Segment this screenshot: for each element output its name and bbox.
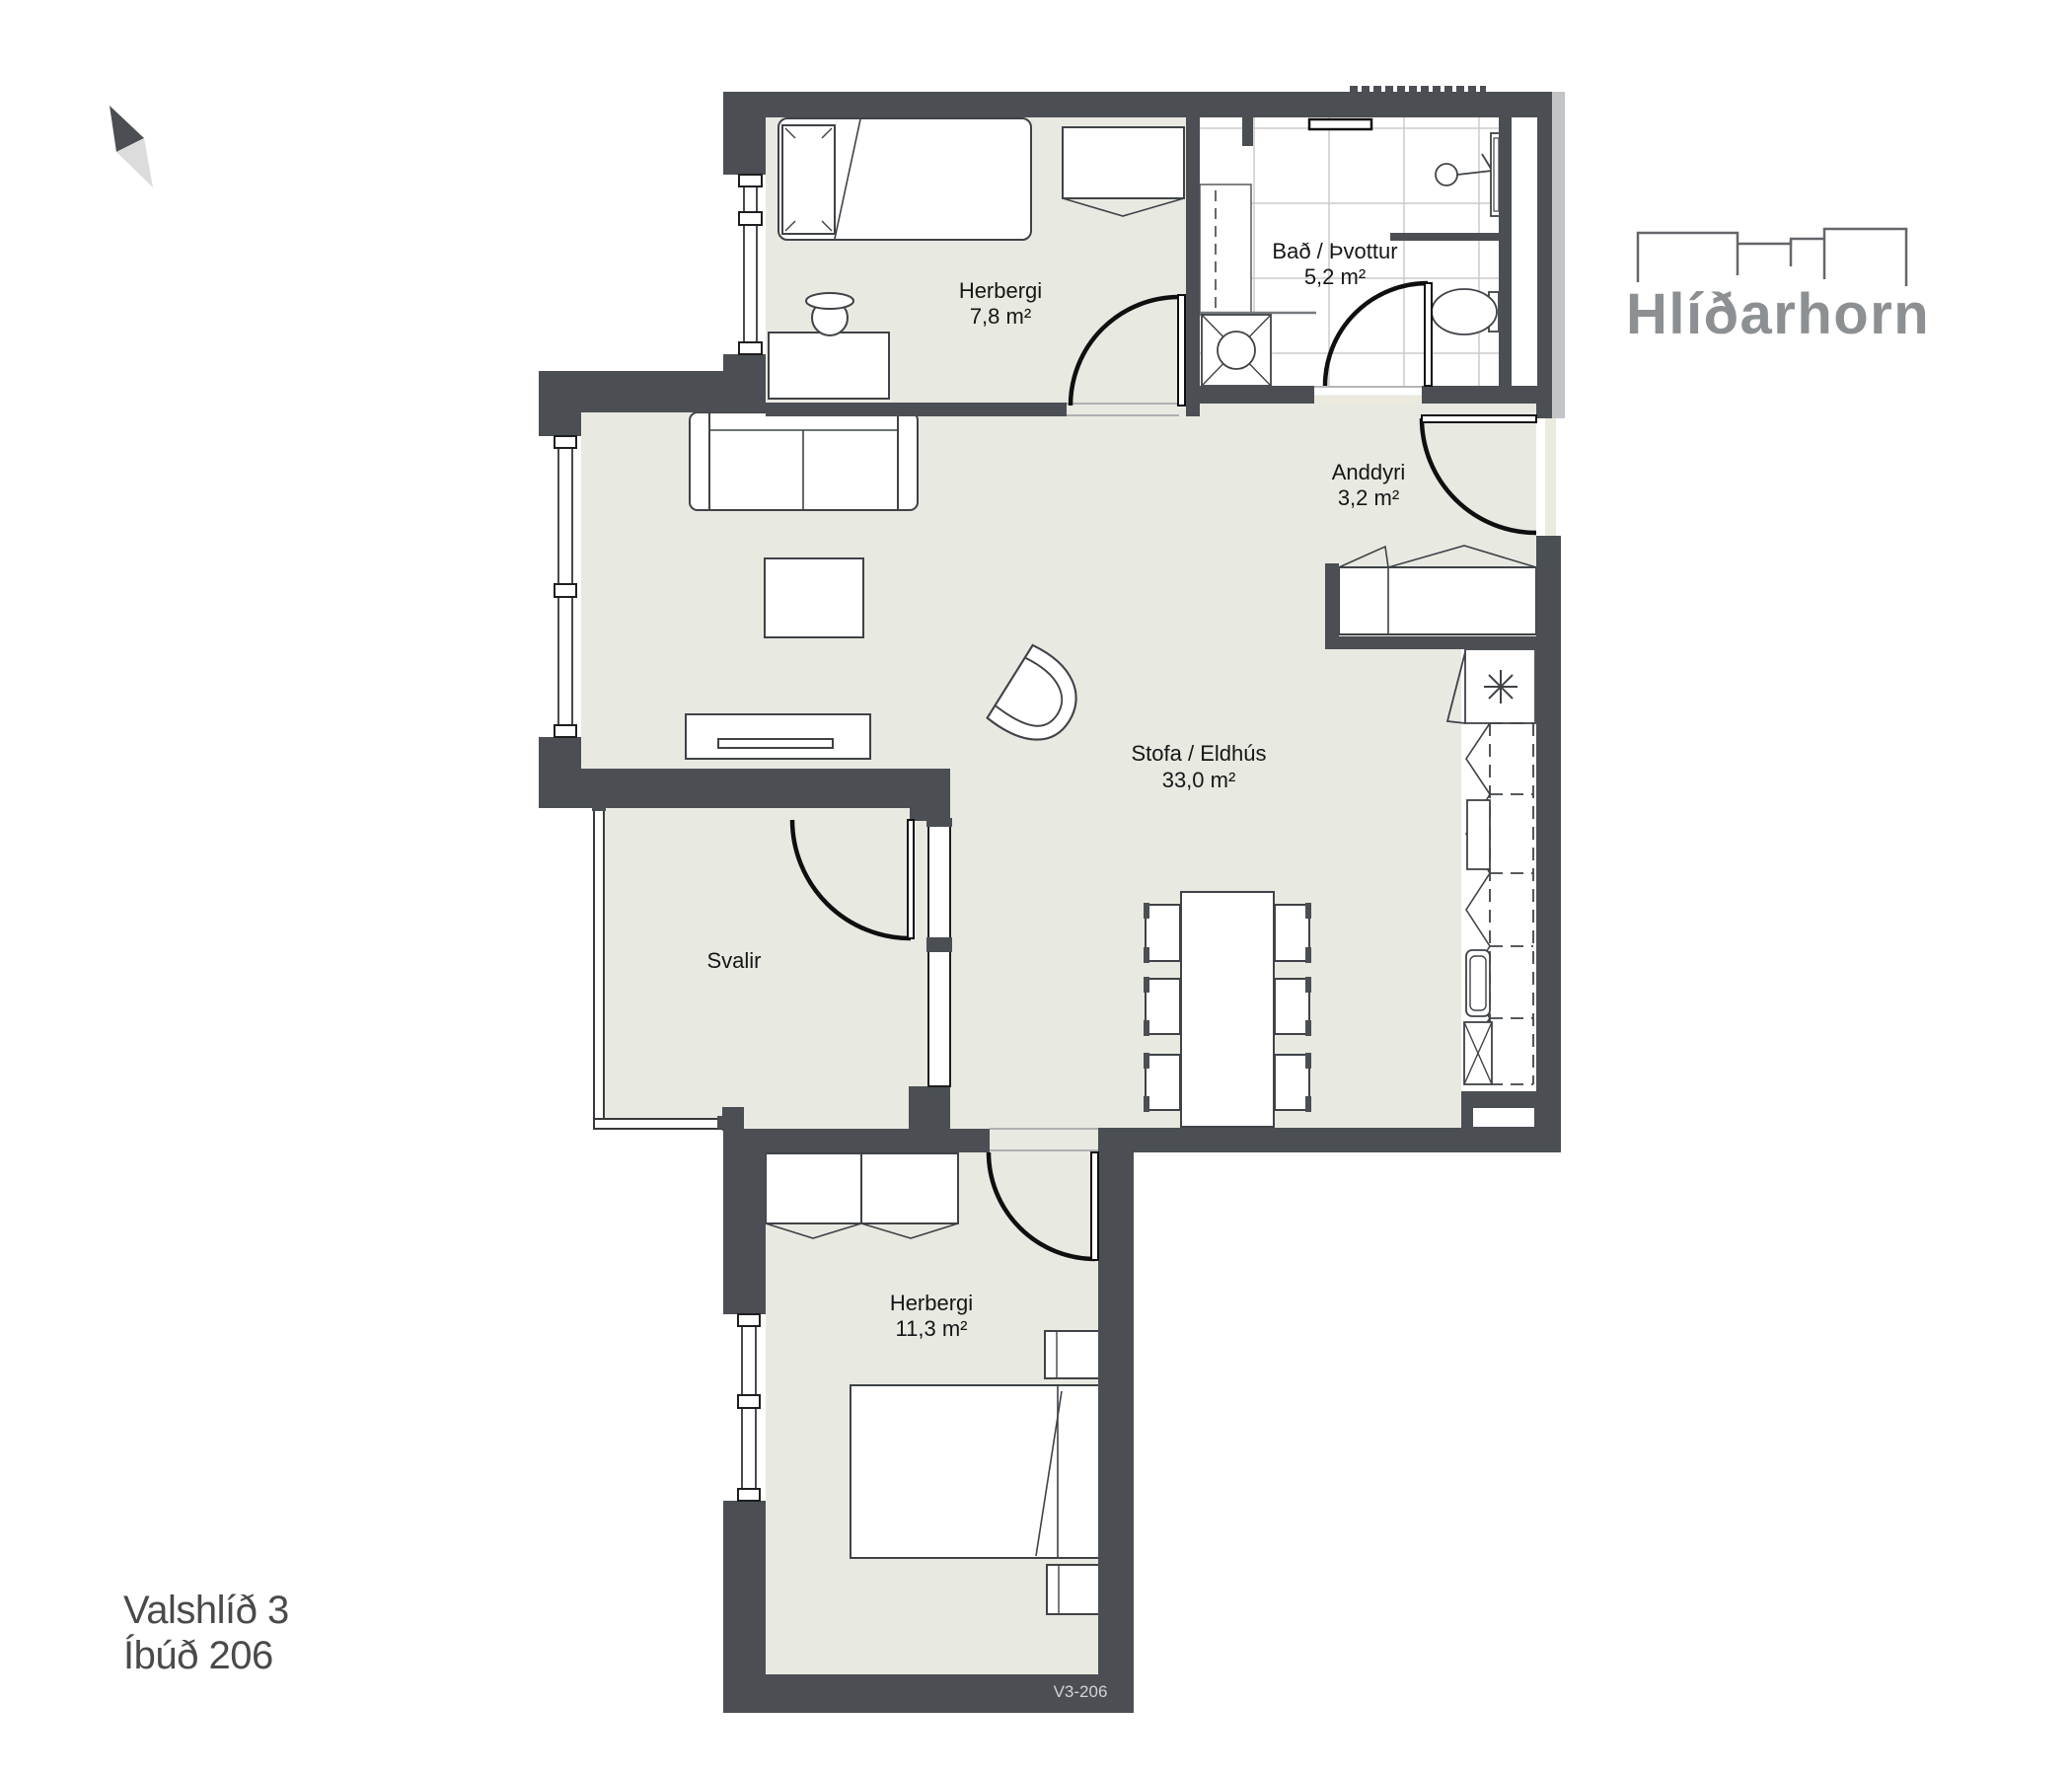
svg-text:Valshlíð 3: Valshlíð 3	[123, 1589, 289, 1632]
svg-text:Herbergi: Herbergi	[959, 278, 1042, 303]
svg-text:Anddyri: Anddyri	[1332, 460, 1406, 484]
svg-text:Íbúð 206: Íbúð 206	[123, 1633, 273, 1677]
svg-text:Stofa / Eldhús: Stofa / Eldhús	[1132, 741, 1267, 766]
svg-text:5,2 m²: 5,2 m²	[1304, 264, 1366, 289]
svg-text:V3-206: V3-206	[1054, 1682, 1108, 1701]
svg-text:7,8 m²: 7,8 m²	[970, 304, 1031, 329]
svg-text:11,3 m²: 11,3 m²	[896, 1316, 968, 1341]
svg-text:Bað / Þvottur: Bað / Þvottur	[1272, 239, 1397, 263]
svg-text:Hlíðarhorn: Hlíðarhorn	[1626, 282, 1930, 346]
svg-text:33,0 m²: 33,0 m²	[1162, 768, 1236, 792]
svg-text:3,2 m²: 3,2 m²	[1338, 485, 1399, 510]
svg-text:Svalir: Svalir	[706, 948, 761, 973]
svg-text:Herbergi: Herbergi	[890, 1291, 973, 1315]
